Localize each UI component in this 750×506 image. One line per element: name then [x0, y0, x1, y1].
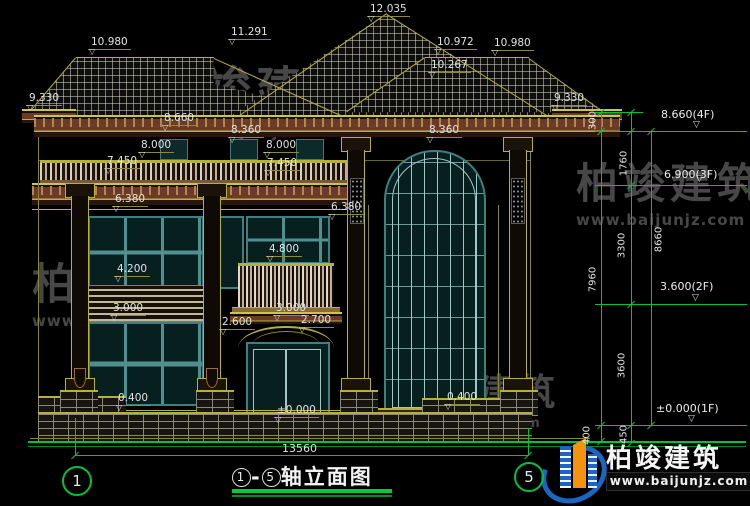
elevation-label-text: 12.035 — [370, 3, 407, 15]
elevation-label-text: 0.400 — [118, 392, 148, 404]
elevation-label: 8.000▽ — [263, 140, 299, 153]
level-marker-icon: ▽ — [693, 120, 700, 130]
elevation-label: 10.980▽ — [88, 37, 131, 50]
segment-dimension-label: 400 — [582, 414, 593, 458]
logo-brand-url: www.baijunjz.com — [606, 472, 750, 491]
elevation-label: 6.380▽ — [112, 194, 148, 207]
segment-dimension-label: 3600 — [617, 344, 628, 388]
elevation-label: 8.360▽ — [228, 125, 264, 138]
elevation-marker-icon: ▽ — [89, 48, 95, 56]
roof-ridge-line — [425, 57, 529, 58]
elevation-marker-icon: ▽ — [299, 326, 305, 334]
elevation-marker-icon: ▽ — [329, 213, 335, 221]
wall-edge-right — [530, 137, 531, 412]
elevation-marker-icon: ▽ — [368, 15, 374, 23]
elevation-label-text: 8.660 — [164, 112, 194, 124]
elevation-label-text: 9.330 — [554, 92, 584, 104]
elevation-marker-icon: ▽ — [105, 167, 111, 175]
pendant-ornament — [206, 368, 218, 388]
elevation-label-text: 6.380 — [115, 193, 145, 205]
elevation-label-text: 7.450 — [267, 157, 297, 169]
dimension-extension-line — [528, 428, 529, 456]
roof-ridge-line — [76, 57, 214, 58]
elevation-label: 10.972▽ — [434, 37, 477, 50]
elevation-label: 10.980▽ — [491, 38, 534, 51]
elevation-marker-icon: ▽ — [265, 169, 271, 177]
elevation-marker-icon: ▽ — [435, 48, 441, 56]
dimension-chain-line — [601, 112, 602, 441]
segment-dimension-label: 8660 — [654, 218, 665, 262]
elevation-marker-icon: ▽ — [111, 314, 117, 322]
axis-bubble: 5 — [514, 462, 544, 492]
level-line — [595, 131, 747, 132]
elevation-marker-icon: ▽ — [113, 205, 119, 213]
segment-dimension-label: 450 — [619, 413, 630, 457]
elevation-marker-icon: ▽ — [274, 314, 280, 322]
elevation-label-text: 4.800 — [269, 243, 299, 255]
elevation-label-text: 11.291 — [231, 26, 268, 38]
logo-building-icon — [560, 446, 571, 488]
elevation-label: 3.000▽ — [110, 303, 146, 316]
elevation-label-text: 9.330 — [29, 92, 59, 104]
column — [203, 196, 221, 378]
elevation-label-text: 8.360 — [429, 124, 459, 136]
elevation-label: 10.267▽ — [428, 60, 471, 73]
elevation-label: 0.400▽ — [444, 392, 480, 405]
axis-bubble: 1 — [62, 466, 92, 496]
elevation-label: 12.035▽ — [367, 4, 410, 17]
level-label: 8.660(4F) — [661, 108, 714, 121]
watermark-brand-text: 柏竣建筑 — [576, 150, 750, 211]
column — [71, 196, 89, 378]
elevation-marker-icon: ▽ — [115, 275, 121, 283]
overall-width-dimension: 13560 — [282, 442, 317, 455]
elevation-label-text: ±0.000 — [277, 404, 316, 416]
level-line — [595, 304, 747, 305]
elevation-label: 4.200▽ — [114, 264, 150, 277]
elevation-marker-icon: ▽ — [220, 328, 226, 336]
elevation-marker-icon: ▽ — [27, 104, 33, 112]
elevation-label: 7.450▽ — [104, 156, 140, 169]
elevation-marker-icon: ▽ — [552, 104, 558, 112]
drawing-title: 1-5轴立面图 — [232, 461, 373, 491]
level-line — [595, 112, 643, 113]
window-3f-left — [88, 216, 204, 289]
title-underline-thick — [232, 489, 392, 493]
third-floor-balustrade — [40, 160, 348, 183]
axis-circle-end: 5 — [262, 468, 281, 487]
elevation-marker-icon: ▽ — [429, 71, 435, 79]
elevation-marker-icon: ▽ — [445, 403, 451, 411]
dimension-extension-line — [75, 418, 76, 456]
arched-window-inner-frame — [392, 158, 476, 408]
elevation-label: 0.400▽ — [115, 393, 151, 406]
elevation-label-text: 8.000 — [266, 139, 296, 151]
elevation-label-text: 3.000 — [276, 302, 306, 314]
axis-circle-start: 1 — [232, 468, 251, 487]
ground-line-yellow — [30, 438, 590, 439]
level-label: 6.900(3F) — [664, 168, 717, 181]
elevation-label: ±0.000▽ — [274, 405, 319, 418]
elevation-label-text: 10.972 — [437, 36, 474, 48]
wall-line — [498, 205, 499, 412]
wall-edge-left — [38, 137, 39, 412]
elevation-label: 9.330▽ — [26, 93, 62, 106]
elevation-label-text: 4.200 — [117, 263, 147, 275]
elevation-label-text: 0.400 — [447, 391, 477, 403]
elevation-marker-icon: ▽ — [162, 124, 168, 132]
level-label: 3.600(2F) — [660, 280, 713, 293]
elevation-label-text: 3.000 — [113, 302, 143, 314]
elevation-label: 9.330▽ — [551, 93, 587, 106]
elevation-drawing-canvas: 柏竣建筑 www.baijunjz.com 柏竣建筑 www.baijunjz.… — [0, 0, 750, 506]
elevation-label-text: 10.980 — [494, 37, 531, 49]
attic-window — [296, 139, 324, 160]
logo-building-icon — [588, 454, 597, 488]
elevation-label: 8.360▽ — [426, 125, 462, 138]
elevation-marker-icon: ▽ — [116, 404, 122, 412]
axis-dash: - — [251, 465, 262, 489]
dimension-chain-line — [651, 131, 652, 425]
segment-dimension-label: 3300 — [617, 224, 628, 268]
elevation-label: 11.291▽ — [228, 27, 271, 40]
level-marker-icon: ▽ — [688, 414, 695, 424]
title-underline-thin — [232, 495, 392, 497]
elevation-label-text: 2.700 — [301, 314, 331, 326]
elevation-label-text: 10.267 — [431, 59, 468, 71]
elevation-label: 6.380▽ — [328, 202, 364, 215]
elevation-marker-icon: ▽ — [492, 49, 498, 57]
brand-logo: 柏竣建筑 www.baijunjz.com — [538, 434, 750, 504]
segment-dimension-label: 300 — [588, 99, 599, 143]
elevation-label: 2.600▽ — [219, 317, 255, 330]
segment-dimension-label: 7960 — [588, 258, 599, 302]
elevation-label-text: 10.980 — [91, 36, 128, 48]
elevation-label: 7.450▽ — [264, 158, 300, 171]
modillion-band — [34, 118, 620, 127]
elevation-marker-icon: ▽ — [229, 136, 235, 144]
elevation-label-text: 8.360 — [231, 124, 261, 136]
elevation-label-text: 7.450 — [107, 155, 137, 167]
elevation-label: 8.660▽ — [161, 113, 197, 126]
elevation-label-text: 6.380 — [331, 201, 361, 213]
elevation-label-text: 2.600 — [222, 316, 252, 328]
segment-dimension-label: 1760 — [619, 142, 630, 186]
column-ornament-panel — [511, 178, 525, 224]
elevation-marker-icon: ▽ — [229, 38, 235, 46]
pendant-ornament — [74, 368, 86, 388]
elevation-label: 8.000▽ — [138, 140, 174, 153]
dimension-line-13560 — [75, 455, 528, 456]
elevation-marker-icon: ▽ — [275, 416, 281, 424]
dimension-chain-line — [631, 112, 632, 443]
level-marker-icon: ▽ — [696, 174, 703, 184]
elevation-marker-icon: ▽ — [427, 136, 433, 144]
elevation-marker-icon: ▽ — [267, 255, 273, 263]
level-marker-icon: ▽ — [692, 293, 699, 303]
elevation-label: 2.700▽ — [298, 315, 334, 328]
elevation-label: 4.800▽ — [266, 244, 302, 257]
elevation-label-text: 8.000 — [141, 139, 171, 151]
drawing-title-text: 轴立面图 — [281, 465, 373, 489]
